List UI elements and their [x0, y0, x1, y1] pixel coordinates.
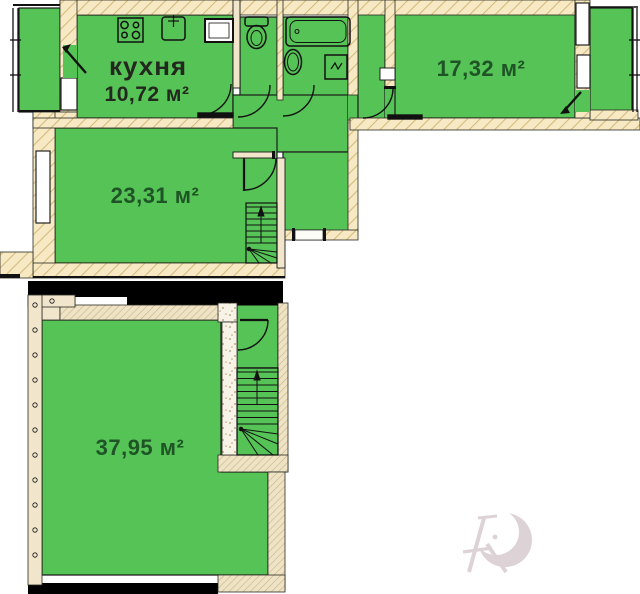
- room-right-area-label: 17,32 м²: [437, 56, 526, 81]
- kitchen-name-label: кухня: [109, 51, 187, 81]
- room-right-door-opening: [385, 88, 395, 118]
- opening-cap: [292, 228, 295, 241]
- hall-leg: [283, 152, 350, 232]
- balcony-left: [19, 8, 60, 112]
- window-icon: [61, 78, 77, 110]
- step-edge: [0, 274, 20, 278]
- window-icon: [577, 55, 590, 88]
- lower-vestibule: [237, 305, 278, 368]
- corridor-passage: [348, 95, 358, 120]
- kitchen-area-label: 10,72 м²: [105, 83, 190, 106]
- room-lower-area-label: 37,95 м²: [96, 435, 185, 460]
- wc-room: [240, 17, 277, 100]
- opening-cap: [323, 228, 326, 241]
- door-threshold: [388, 115, 422, 119]
- window-icon: [36, 151, 50, 223]
- bathroom: [283, 17, 348, 100]
- door-threshold: [198, 113, 233, 117]
- floor-plan: кухня 10,72 м² 17,32 м² 23,31 м² 37,95 м…: [0, 0, 640, 594]
- balcony-door-opening: [576, 90, 590, 112]
- room-middle-area-label: 23,31 м²: [111, 183, 200, 208]
- balcony-right: [590, 8, 632, 112]
- floor-plan-drawing: кухня 10,72 м² 17,32 м² 23,31 м² 37,95 м…: [0, 0, 640, 594]
- wall-niche: [380, 68, 395, 80]
- structural-wall-black: [28, 583, 218, 594]
- shaft-window: [576, 3, 589, 45]
- wall-end-cap: [384, 86, 396, 89]
- entrance-opening: [295, 230, 323, 240]
- hall-top: [358, 14, 385, 120]
- wall-end-cap: [272, 151, 275, 159]
